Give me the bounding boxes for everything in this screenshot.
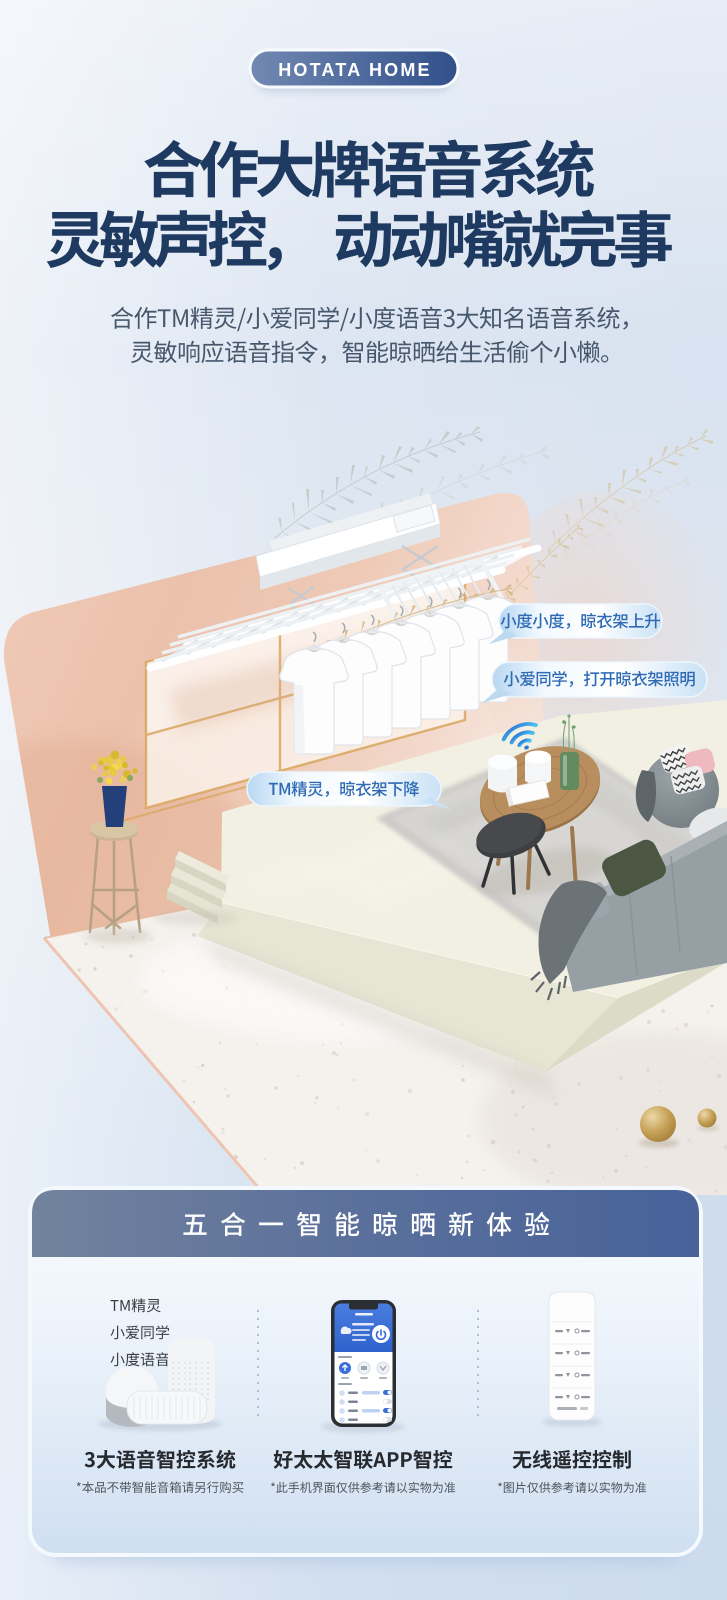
svg-text:HOTATA HOME: HOTATA HOME [278, 60, 432, 80]
